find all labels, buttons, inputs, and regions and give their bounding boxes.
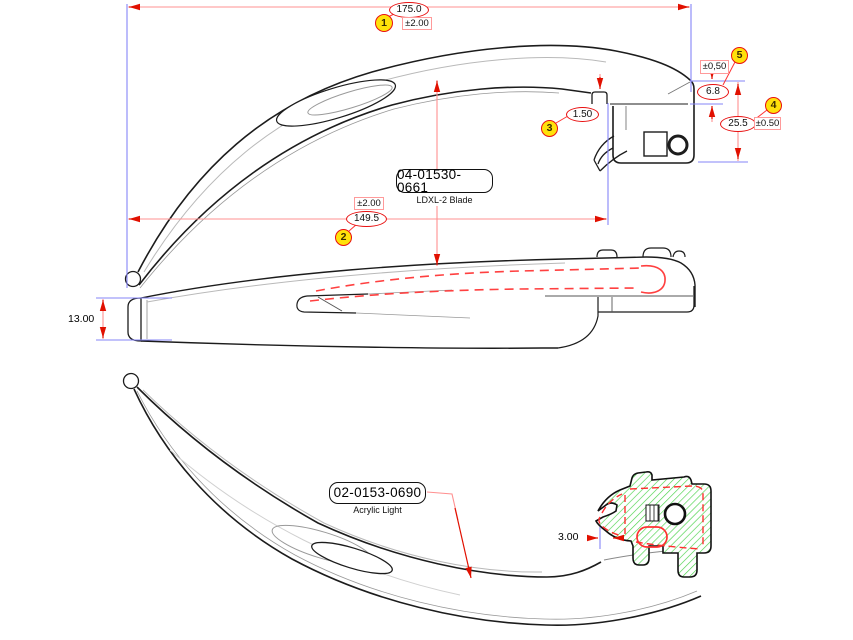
connector-contact-ring bbox=[669, 136, 687, 154]
part-description-blade: LDXL-2 Blade bbox=[396, 196, 493, 205]
balloon-3: 3 bbox=[541, 120, 558, 137]
balloon-2: 2 bbox=[335, 229, 352, 246]
part-number-light: 02-0153-0690 bbox=[329, 482, 426, 504]
dim-value-step-height: 1.50 bbox=[566, 107, 599, 122]
dim-tolerance-plate-thickness: ±0,50 bbox=[700, 60, 729, 74]
dimension-lines bbox=[103, 7, 738, 538]
balloon-5: 5 bbox=[731, 47, 748, 64]
drawing-sheet: 175.0 ±2.00 1 ±2.00 149.5 2 1.50 3 25.5 … bbox=[0, 0, 853, 640]
connector-section-hatched bbox=[596, 472, 711, 577]
blade-tip-ball bbox=[126, 272, 141, 287]
part-description-light: Acrylic Light bbox=[329, 506, 426, 515]
middle-view-blade bbox=[128, 248, 695, 348]
dim-value-blade-length: 149.5 bbox=[346, 211, 387, 227]
dim-value-overall-length: 175.0 bbox=[389, 2, 429, 18]
dim-tolerance-blade-length: ±2.00 bbox=[354, 197, 384, 210]
dim-tolerance-heel-height: ±0.50 bbox=[754, 117, 781, 130]
connector-hole-section bbox=[665, 504, 685, 524]
connector-square-hole bbox=[644, 132, 667, 156]
dim-value-plate-thickness: 6.8 bbox=[697, 84, 729, 100]
latch-bumps bbox=[597, 248, 685, 257]
dim-value-heel-height: 25.5 bbox=[720, 116, 756, 132]
connector-hook bbox=[594, 136, 627, 171]
blade-tip-ball-bottom bbox=[124, 374, 139, 389]
dim-value-blade-width: 13.00 bbox=[68, 314, 94, 325]
connector-block-side bbox=[594, 80, 694, 171]
dim-tolerance-overall-length: ±2.00 bbox=[402, 17, 432, 30]
part-number-blade: 04-01530-0661 bbox=[396, 169, 493, 193]
dim-value-light-inset: 3.00 bbox=[558, 532, 578, 543]
balloon-1: 1 bbox=[375, 14, 393, 32]
balloon-4: 4 bbox=[765, 97, 782, 114]
